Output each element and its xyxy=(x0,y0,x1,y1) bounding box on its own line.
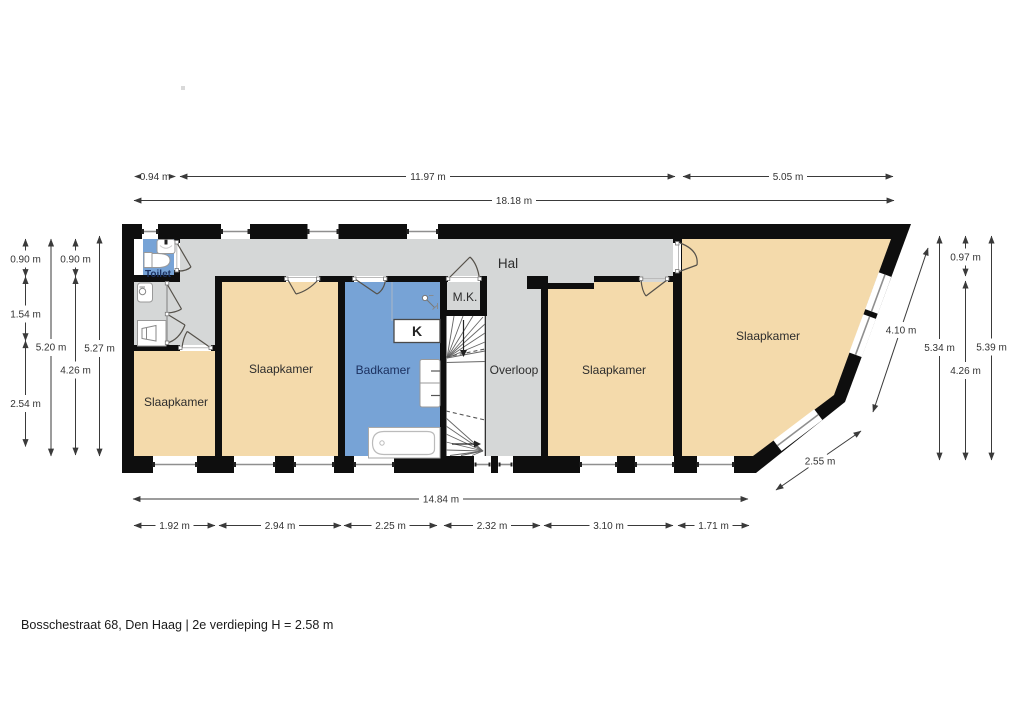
svg-text:Slaapkamer: Slaapkamer xyxy=(582,363,646,377)
svg-text:5.05 m: 5.05 m xyxy=(773,172,804,183)
svg-text:5.39 m: 5.39 m xyxy=(976,343,1007,354)
svg-text:Slaapkamer: Slaapkamer xyxy=(736,329,800,343)
svg-text:14.84 m: 14.84 m xyxy=(423,495,459,506)
svg-text:Overloop: Overloop xyxy=(490,363,539,377)
svg-text:M.K.: M.K. xyxy=(453,290,478,304)
svg-text:Badkamer: Badkamer xyxy=(356,363,411,377)
svg-text:3.10 m: 3.10 m xyxy=(593,521,624,532)
svg-text:Slaapkamer: Slaapkamer xyxy=(144,395,208,409)
svg-text:Toilet: Toilet xyxy=(145,269,172,280)
svg-text:Hal: Hal xyxy=(498,256,518,271)
svg-text:5.34 m: 5.34 m xyxy=(924,343,955,354)
svg-text:5.27 m: 5.27 m xyxy=(84,344,115,355)
svg-text:2.94 m: 2.94 m xyxy=(265,521,296,532)
svg-text:0.94 m: 0.94 m xyxy=(140,172,171,183)
svg-text:Bosschestraat 68, Den Haag | 2: Bosschestraat 68, Den Haag | 2e verdiepi… xyxy=(21,618,333,632)
svg-text:0.90 m: 0.90 m xyxy=(60,255,91,266)
svg-text:4.26 m: 4.26 m xyxy=(60,366,91,377)
svg-text:1.54 m: 1.54 m xyxy=(10,310,41,321)
svg-text:1.71 m: 1.71 m xyxy=(698,521,729,532)
svg-text:K: K xyxy=(412,323,422,339)
svg-text:2.25 m: 2.25 m xyxy=(375,521,406,532)
svg-text:2.55 m: 2.55 m xyxy=(805,457,836,468)
svg-text:2.32 m: 2.32 m xyxy=(477,521,508,532)
svg-text:0.90 m: 0.90 m xyxy=(10,255,41,266)
svg-text:Slaapkamer: Slaapkamer xyxy=(249,362,313,376)
svg-text:4.26 m: 4.26 m xyxy=(950,366,981,377)
svg-text:0.97 m: 0.97 m xyxy=(950,253,981,264)
svg-text:5.20 m: 5.20 m xyxy=(36,343,67,354)
svg-text:4.10 m: 4.10 m xyxy=(886,326,917,337)
svg-text:2.54 m: 2.54 m xyxy=(10,399,41,410)
svg-text:18.18 m: 18.18 m xyxy=(496,196,532,207)
svg-text:11.97 m: 11.97 m xyxy=(410,172,445,183)
svg-text:1.92 m: 1.92 m xyxy=(159,521,190,532)
